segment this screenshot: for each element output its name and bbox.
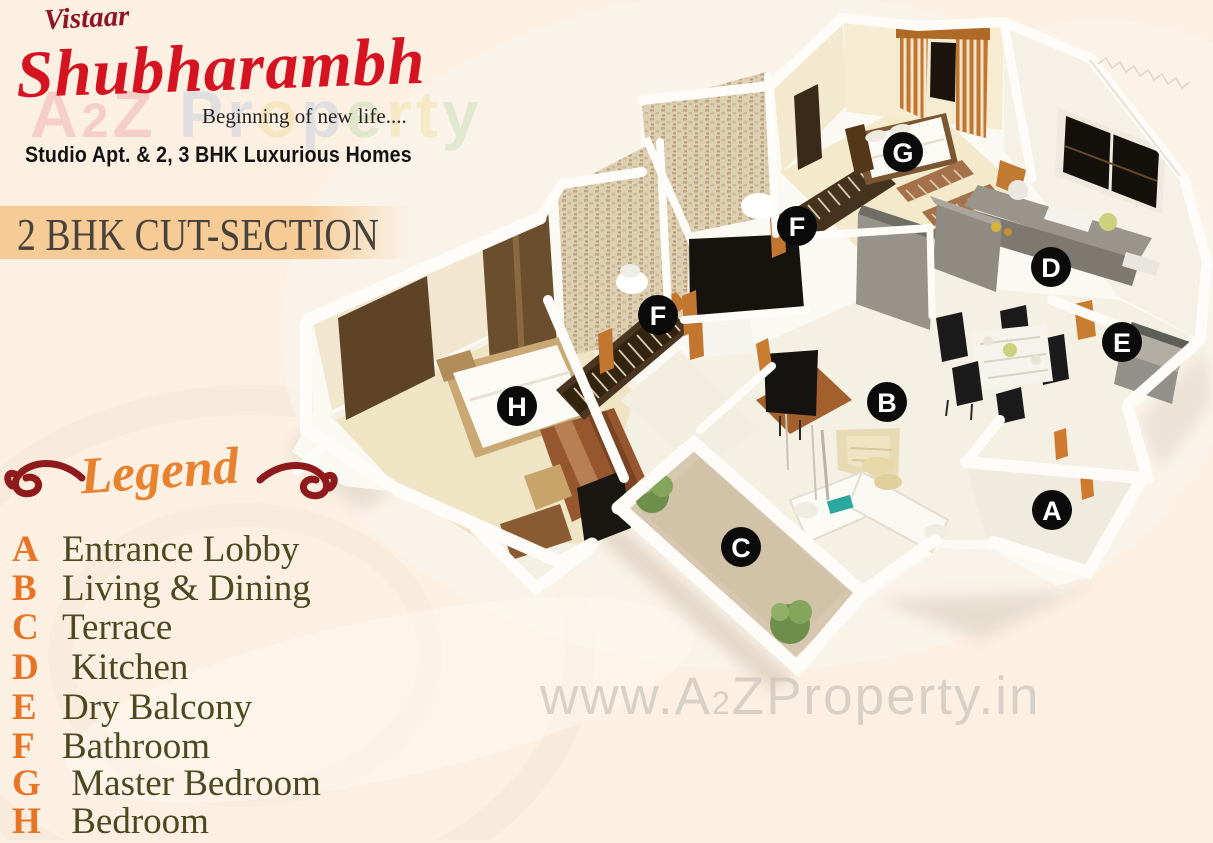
svg-text:F: F [789, 212, 806, 242]
svg-text:G: G [892, 138, 913, 168]
svg-text:D: D [1041, 253, 1061, 283]
svg-text:B: B [877, 388, 897, 418]
svg-text:A: A [1042, 496, 1062, 526]
svg-text:F: F [650, 301, 667, 331]
svg-text:E: E [1113, 328, 1131, 358]
svg-text:C: C [731, 533, 751, 563]
svg-text:H: H [507, 392, 527, 422]
